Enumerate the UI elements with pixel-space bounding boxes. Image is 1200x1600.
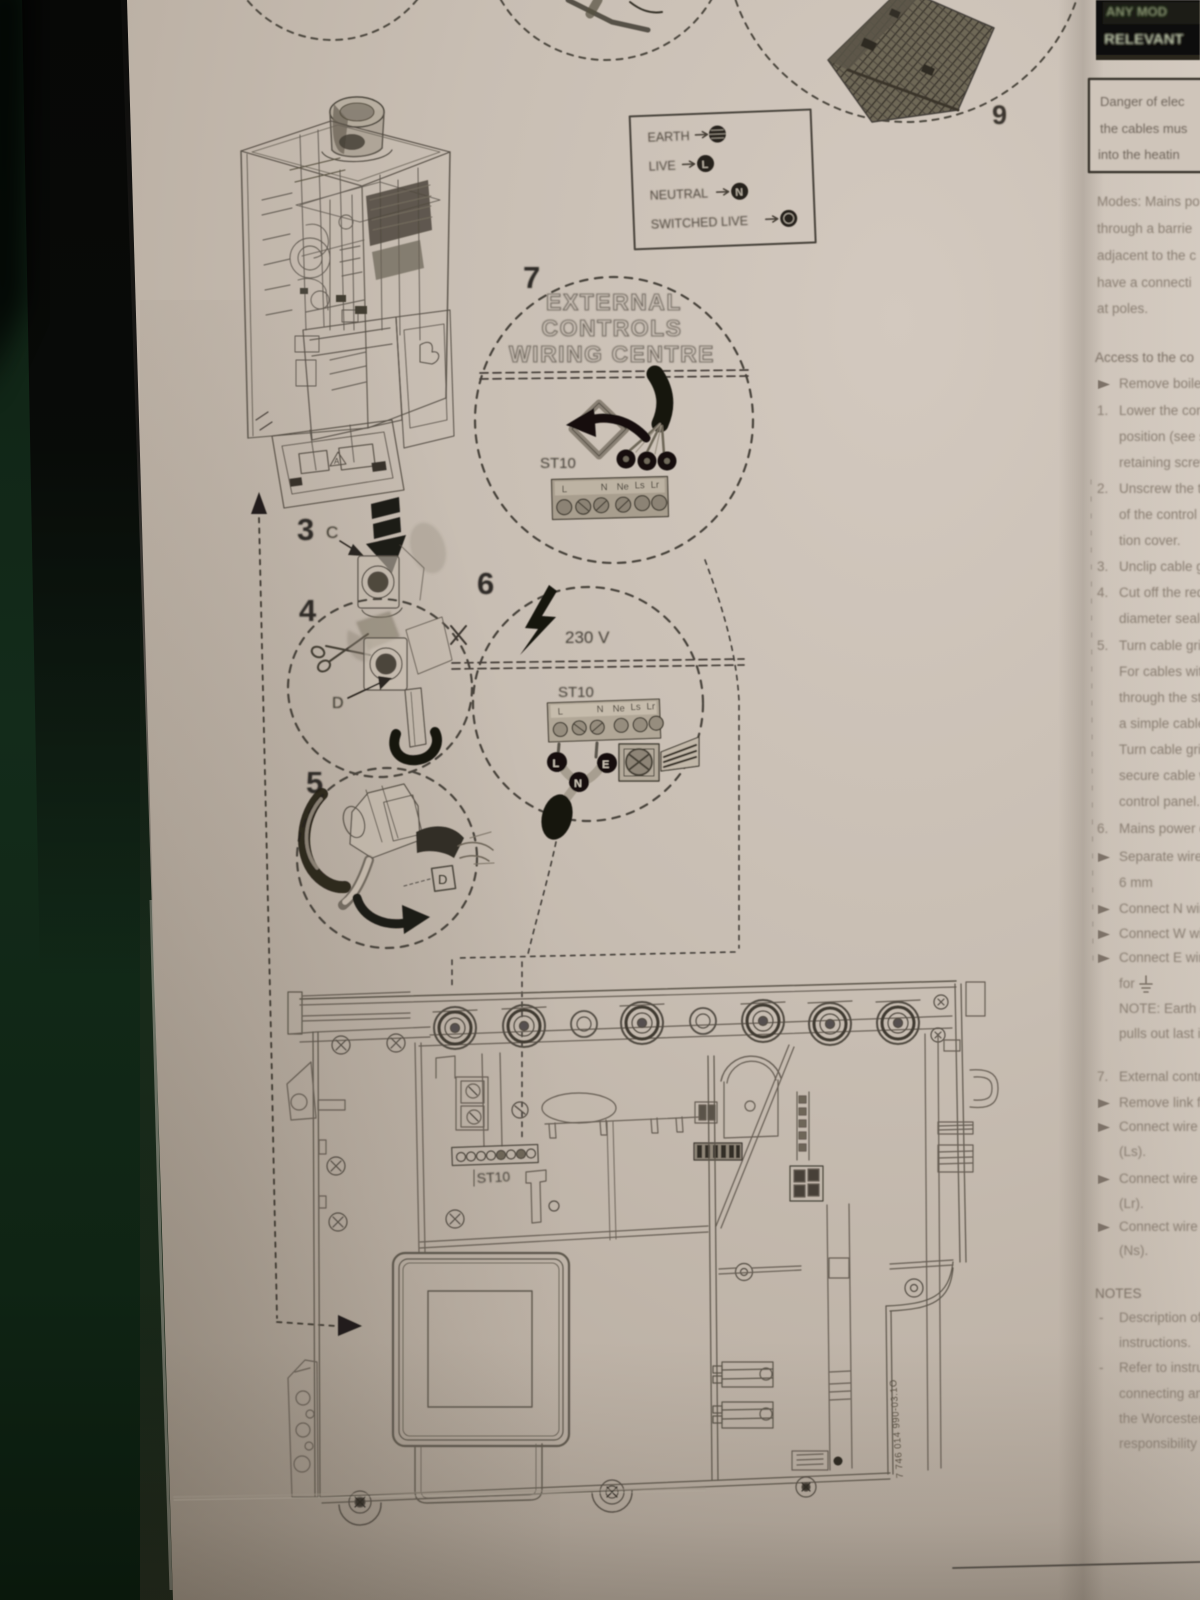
svg-text:Danger of elec: Danger of elec [1100, 94, 1185, 109]
svg-text:secure cable w: secure cable w [1119, 768, 1200, 783]
svg-text:Lr: Lr [651, 480, 660, 491]
svg-text:-: - [1099, 1360, 1104, 1375]
svg-text:at poles.: at poles. [1097, 301, 1148, 316]
svg-text:Access to the co: Access to the co [1095, 350, 1194, 365]
svg-text:through a barrie: through a barrie [1097, 221, 1192, 236]
svg-text:Connect wire t: Connect wire t [1119, 1171, 1200, 1186]
svg-text:EARTH: EARTH [647, 129, 690, 145]
svg-text:(Lr).: (Lr). [1119, 1196, 1144, 1211]
svg-text:CONTROLS: CONTROLS [541, 315, 682, 341]
svg-text:into the heatin: into the heatin [1098, 147, 1180, 162]
svg-text:control panel.: control panel. [1119, 794, 1200, 809]
svg-text:Separate wires: Separate wires [1119, 849, 1200, 864]
svg-text:Connect wire t: Connect wire t [1119, 1219, 1200, 1234]
svg-text:1.: 1. [1097, 403, 1108, 418]
svg-text:Remove link fro: Remove link fro [1119, 1095, 1200, 1110]
svg-text:connecting an e: connecting an e [1119, 1386, 1200, 1401]
svg-text:Mains power c: Mains power c [1119, 821, 1200, 836]
svg-text:E: E [602, 759, 609, 771]
svg-text:Connect N wir: Connect N wir [1119, 901, 1200, 916]
svg-text:the Worcester: the Worcester [1119, 1411, 1200, 1426]
svg-text:adjacent to the c: adjacent to the c [1097, 248, 1196, 263]
svg-text:Turn cable grip: Turn cable grip [1119, 742, 1200, 757]
svg-text:6: 6 [477, 566, 494, 601]
svg-text:NEUTRAL: NEUTRAL [649, 186, 708, 202]
svg-text:Description of t: Description of t [1119, 1310, 1200, 1325]
svg-text:RELEVANT: RELEVANT [1104, 31, 1184, 48]
svg-text:3.: 3. [1097, 559, 1108, 574]
svg-text:3: 3 [297, 512, 314, 547]
svg-text:Lower the cont: Lower the cont [1119, 403, 1200, 418]
svg-text:(Ns).: (Ns). [1119, 1243, 1148, 1258]
svg-text:Unclip cable gu: Unclip cable gu [1119, 559, 1200, 574]
svg-text:EXTERNAL: EXTERNAL [546, 289, 682, 315]
svg-text:(Ls).: (Ls). [1119, 1144, 1146, 1159]
svg-text:diameter seale: diameter seale [1119, 611, 1200, 626]
svg-text:responsibility o: responsibility o [1119, 1436, 1200, 1451]
svg-text:ST10: ST10 [558, 684, 594, 701]
svg-text:9: 9 [992, 100, 1007, 130]
svg-text:A: A [334, 457, 340, 466]
svg-text:-: - [1099, 1310, 1104, 1325]
svg-text:N: N [601, 482, 608, 493]
svg-text:Refer to instruc: Refer to instruc [1119, 1360, 1200, 1375]
svg-text:230 V: 230 V [565, 628, 610, 647]
svg-text:ANY MOD: ANY MOD [1106, 4, 1167, 19]
svg-text:For cables wit: For cables wit [1119, 664, 1200, 679]
svg-text:the cables mus: the cables mus [1100, 121, 1188, 136]
svg-text:Ls: Ls [630, 702, 641, 713]
svg-text:External contro: External contro [1119, 1069, 1200, 1084]
svg-text:4: 4 [299, 593, 317, 628]
svg-text:Lr: Lr [646, 701, 655, 712]
svg-text:7: 7 [523, 260, 540, 295]
svg-text:6 mm: 6 mm [1119, 875, 1153, 890]
svg-text:NOTE: Earth c: NOTE: Earth c [1119, 1001, 1200, 1016]
svg-text:Connect wire t: Connect wire t [1119, 1119, 1200, 1134]
svg-text:position (see s: position (see s [1119, 429, 1200, 444]
svg-text:retaining screw: retaining screw [1119, 455, 1200, 470]
svg-text:2.: 2. [1097, 481, 1108, 496]
svg-text:Ne: Ne [612, 703, 625, 714]
svg-text:Connect W wir: Connect W wir [1119, 926, 1200, 941]
svg-text:Connect E wire: Connect E wire [1119, 950, 1200, 965]
svg-text:L: L [553, 758, 560, 770]
svg-text:Remove boiler: Remove boiler [1119, 376, 1200, 391]
svg-text:L: L [562, 484, 568, 495]
svg-text:N: N [735, 187, 743, 199]
svg-text:N: N [596, 704, 603, 715]
svg-text:ST10: ST10 [476, 1168, 510, 1186]
svg-text:Unscrew the tw: Unscrew the tw [1119, 481, 1200, 496]
svg-text:Ne: Ne [617, 482, 629, 493]
svg-text:Turn cable grip: Turn cable grip [1119, 638, 1200, 653]
svg-text:pulls out last if: pulls out last if [1119, 1026, 1200, 1041]
svg-text:NOTES: NOTES [1095, 1286, 1142, 1301]
svg-text:Modes: Mains po: Modes: Mains po [1097, 194, 1200, 209]
svg-text:D: D [438, 872, 447, 887]
svg-text:for: for [1119, 976, 1135, 991]
svg-text:have a connecti: have a connecti [1097, 275, 1192, 290]
svg-text:WIRING CENTRE: WIRING CENTRE [509, 341, 715, 367]
svg-text:7.: 7. [1097, 1069, 1108, 1084]
svg-text:4.: 4. [1097, 585, 1108, 600]
svg-text:a simple cable: a simple cable [1119, 716, 1200, 731]
svg-text:5.: 5. [1097, 638, 1108, 653]
svg-text:L: L [701, 159, 708, 171]
svg-text:D: D [332, 695, 344, 712]
svg-text:ST10: ST10 [540, 455, 576, 472]
svg-text:6.: 6. [1097, 821, 1108, 836]
svg-text:instructions.: instructions. [1119, 1335, 1191, 1350]
svg-text:tion cover.: tion cover. [1119, 533, 1181, 548]
svg-text:LIVE: LIVE [648, 159, 676, 174]
svg-text:of the control p: of the control p [1119, 507, 1200, 522]
svg-text:C: C [326, 523, 338, 542]
svg-text:Ls: Ls [635, 480, 646, 491]
svg-text:L: L [558, 706, 564, 717]
svg-text:through the st: through the st [1119, 690, 1200, 705]
svg-text:Cut off the requ: Cut off the requ [1119, 585, 1200, 600]
svg-text:N: N [574, 778, 582, 790]
